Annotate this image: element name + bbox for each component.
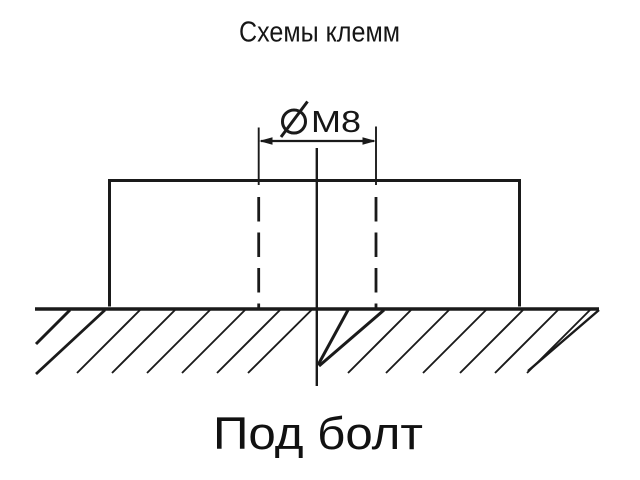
svg-text:M8: M8 — [311, 104, 361, 139]
svg-text:Схемы клемм: Схемы клемм — [239, 17, 400, 49]
svg-text:Под болт: Под болт — [213, 408, 423, 459]
